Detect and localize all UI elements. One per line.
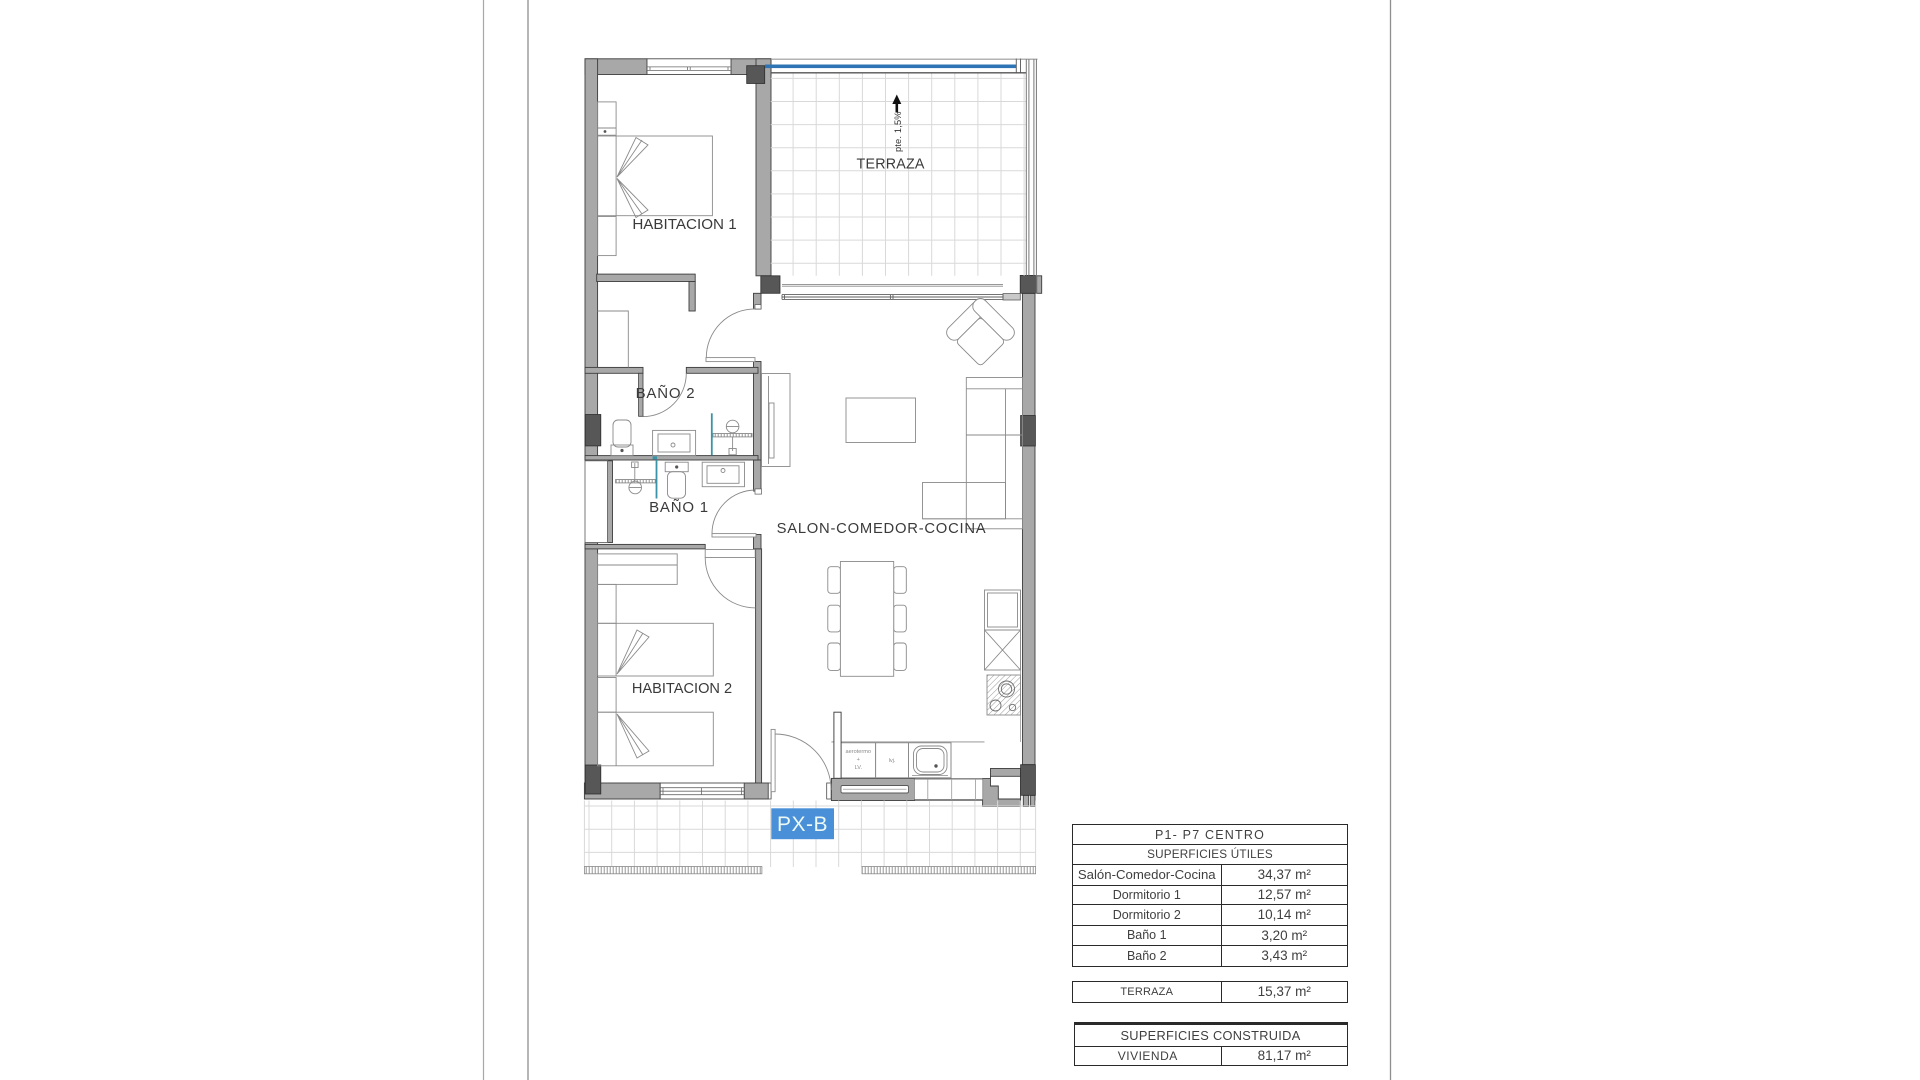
svg-text:+: + — [857, 757, 860, 763]
svg-text:aerotermo: aerotermo — [846, 749, 872, 755]
svg-text:BAÑO 2: BAÑO 2 — [636, 385, 696, 402]
svg-text:pte. 1,5%: pte. 1,5% — [893, 111, 903, 152]
svg-text:HABITACION 1: HABITACION 1 — [632, 216, 736, 233]
svg-text:HABITACION 2: HABITACION 2 — [632, 681, 732, 697]
svg-text:PX-B: PX-B — [777, 813, 828, 836]
svg-text:lvj.: lvj. — [889, 758, 896, 764]
svg-text:TERRAZA: TERRAZA — [857, 157, 925, 173]
svg-text:LV.: LV. — [855, 765, 863, 771]
svg-text:BAÑO 1: BAÑO 1 — [649, 499, 709, 516]
svg-text:SALON-COMEDOR-COCINA: SALON-COMEDOR-COCINA — [777, 521, 987, 537]
